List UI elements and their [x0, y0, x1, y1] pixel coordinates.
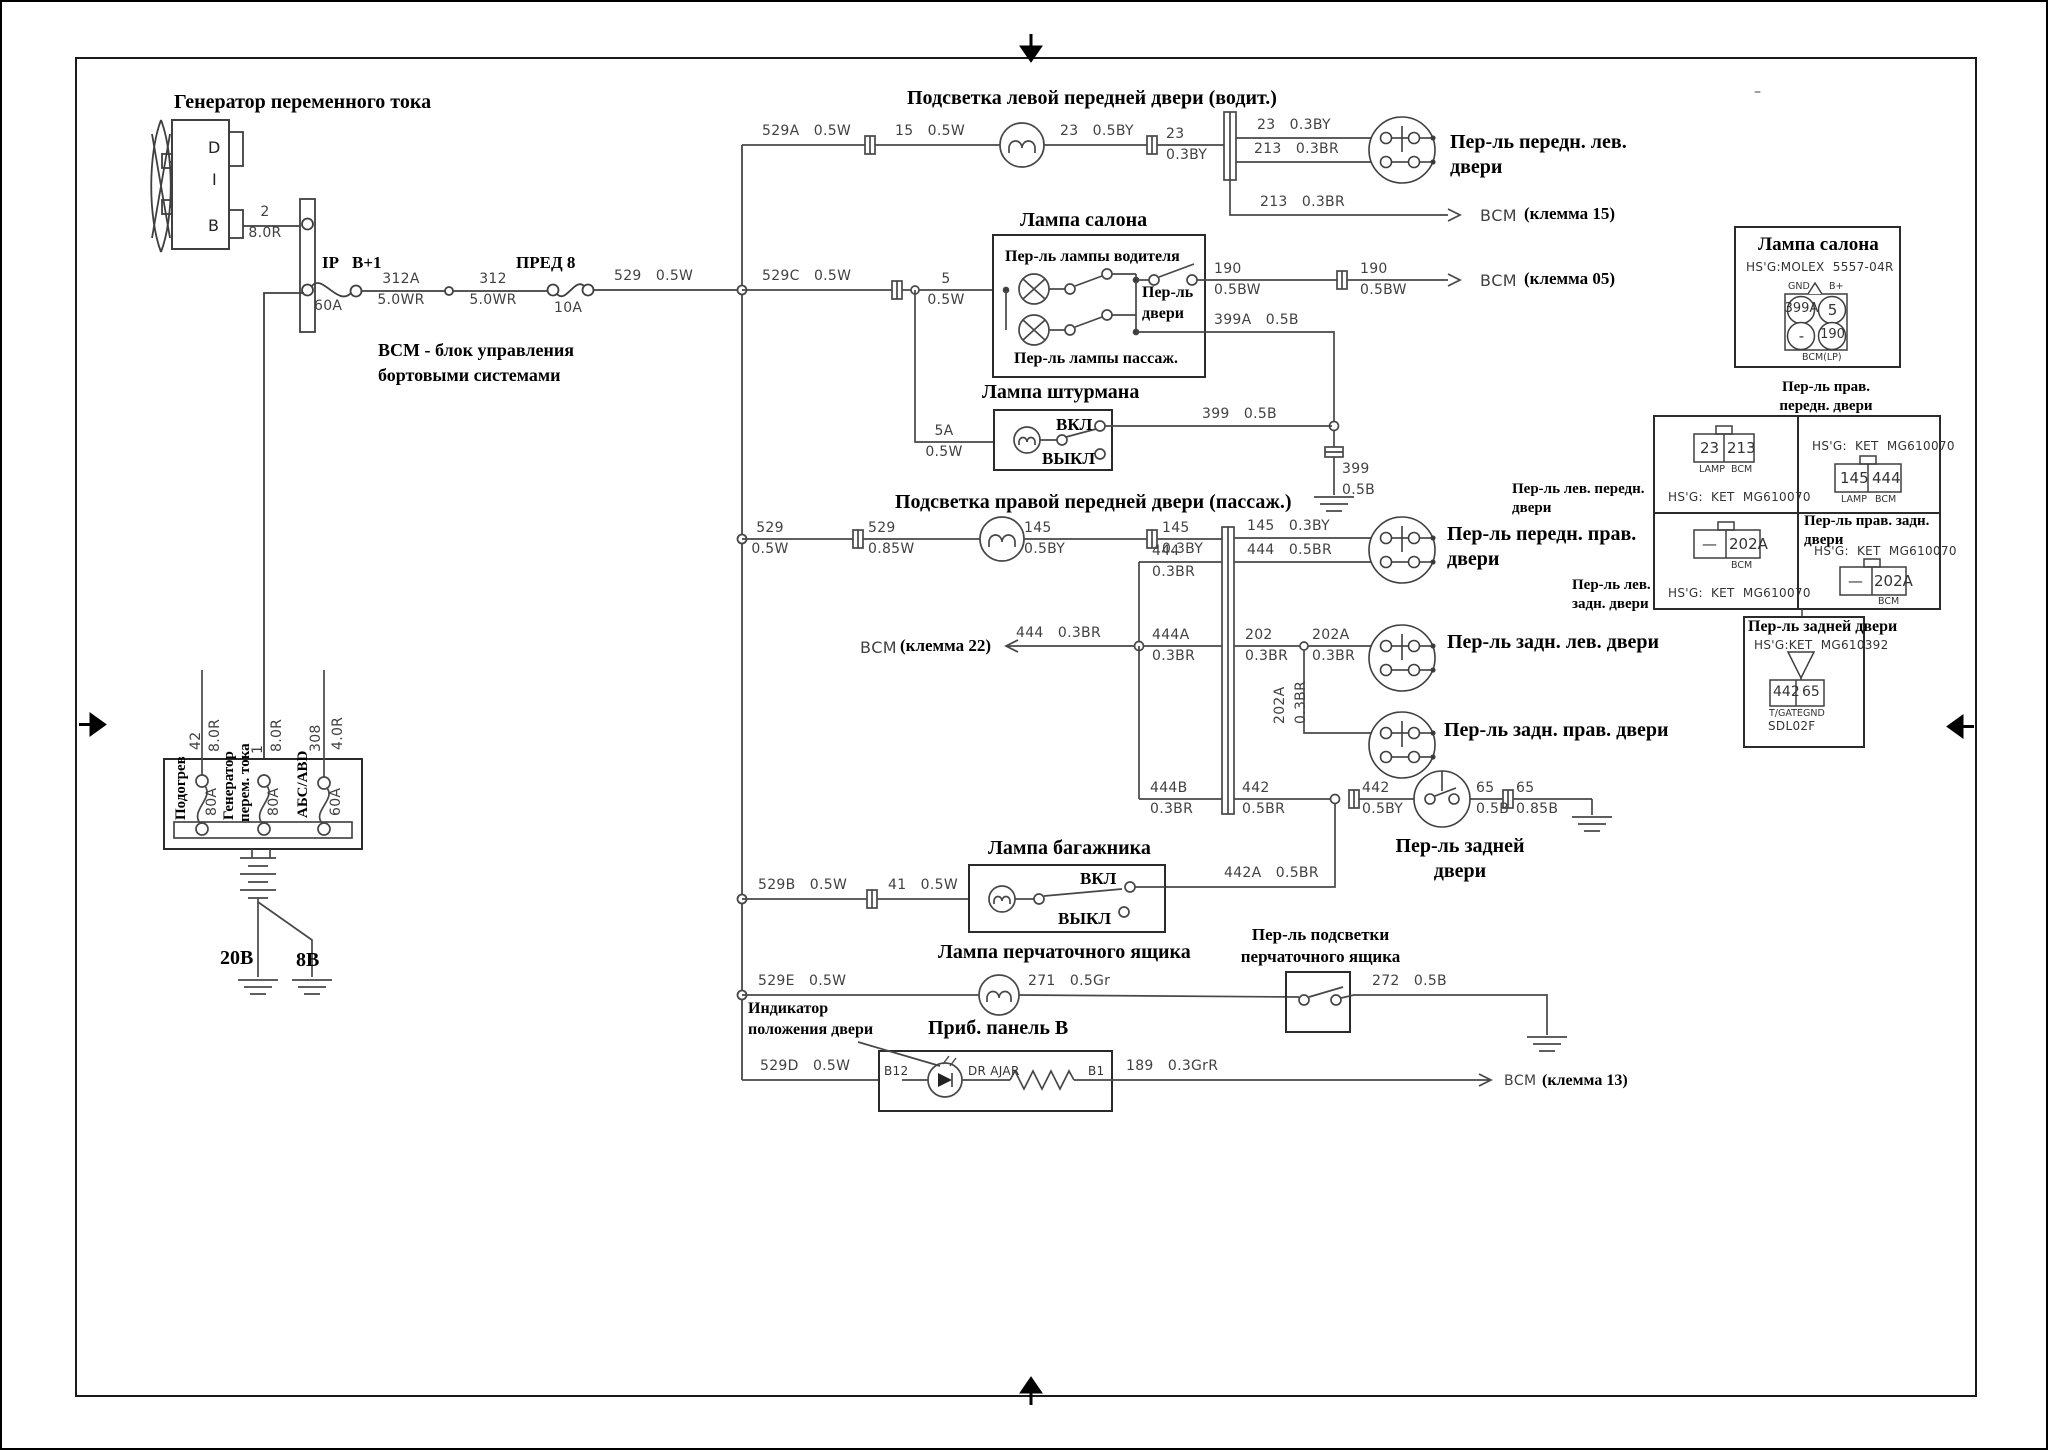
ip-label: IP [322, 252, 339, 274]
glovebox-switch-title: Пер-ль подсветки перчаточного ящика [1228, 924, 1413, 968]
grid-tl-bcm: BCM [1731, 464, 1752, 475]
wire-190b-label: 190 0.5BW [1360, 259, 1407, 301]
grid-bl-hsg: HS'G: KET MG610070 [1668, 586, 1811, 600]
wire-190a-label: 190 0.5BW [1214, 259, 1261, 301]
wire-442a-label: 442 0.5BR [1242, 778, 1285, 820]
wire-202a-vert-label: 202A 0.3BR [1270, 681, 1312, 724]
pin-5: 5 [1824, 301, 1841, 319]
dr-ajar-label: DR AJAR [968, 1064, 1020, 1078]
gen-pin-d: D [208, 138, 220, 157]
wire-213a-label: 213 0.3BR [1254, 139, 1339, 160]
tailgate-pin-442: 442 [1773, 684, 1800, 700]
wire-529-label: 529 0.5W [614, 266, 693, 287]
gen-pin-b: B [208, 216, 219, 235]
wire-272-label: 272 0.5B [1372, 971, 1447, 992]
bcm-15-label: ВСМ [1480, 205, 1517, 226]
pin-gnd-label: GND [1788, 281, 1810, 292]
grid-tr-lamp: LAMP [1841, 494, 1867, 505]
bcm-22-label: ВСМ [860, 637, 897, 658]
pin-399a: 399A [1783, 301, 1820, 316]
passenger-lamp-switch-label: Пер-ль лампы пассаж. [1014, 348, 1178, 369]
wire-529s-label: 529 0.5W [744, 518, 796, 560]
grid-tr-pin2: 444 [1872, 469, 1901, 487]
switch-front-right-label: Пер-ль передн. прав. двери [1447, 522, 1636, 572]
wire-529d-label: 529D 0.5W [760, 1056, 850, 1077]
grid-header-right-front: Пер-ль прав. передн. двери [1762, 378, 1890, 416]
wire-444b-label: 444 0.3BR [1016, 623, 1101, 644]
fuse-abs-amp: 60А [326, 788, 347, 816]
interior-lamp-title: Лампа салона [1020, 208, 1147, 233]
pin-b1-label: B1 [1088, 1064, 1104, 1078]
gen-pin-i: I [212, 170, 217, 189]
wire-5-label: 5 0.5W [920, 269, 972, 311]
wire-399-ground-label: 399 0.5B [1342, 459, 1375, 501]
wire-213b-label: 213 0.3BR [1260, 192, 1345, 213]
navigator-off-label: ВЫКЛ [1042, 448, 1095, 470]
wire-308-label: 308 [306, 724, 327, 752]
generator-title: Генератор переменного тока [174, 90, 431, 115]
wire-189-label: 189 0.3GrR [1126, 1056, 1218, 1077]
wire-23-label: 23 0.5BY [1060, 121, 1134, 142]
tailgate-box-title: Пер-ль задней двери [1748, 616, 1897, 637]
wire-1-gauge: 8.0R [267, 719, 288, 752]
wire-312-label: 312 5.0WR [462, 269, 524, 311]
fuse-abs-label: АБС/ABD [294, 751, 313, 818]
ground-20v-label: 20В [220, 946, 253, 971]
fuse-8-label: ПРЕД 8 [516, 252, 575, 274]
switch-tailgate-label: Пер-ль задней двери [1390, 834, 1530, 884]
wire-271-label: 271 0.5Gr [1028, 971, 1110, 992]
grid-br-bcm: BCM [1878, 596, 1899, 607]
bcm-terminal-05: (клемма 05) [1524, 268, 1615, 290]
grid-tl-hsg: HS'G: KET MG610070 [1668, 490, 1811, 504]
grid-tr-pin1: 145 [1840, 469, 1869, 487]
wire-529bb-label: 529B 0.5W [758, 875, 847, 896]
door-indicator-label: Индикатор положения двери [748, 998, 873, 1040]
wire-399a-label: 399A 0.5B [1214, 310, 1299, 331]
wire-23-stack-label: 23 0.3BY [1166, 124, 1207, 166]
switch-front-left-label: Пер-ль передн. лев. двери [1450, 130, 1627, 180]
trunk-off-label: ВЫКЛ [1058, 908, 1111, 930]
wire-529a-label: 529A 0.5W [762, 121, 851, 142]
bcm-terminal-13: (клемма 13) [1542, 1070, 1628, 1091]
wire-442b-label: 442 0.5BY [1362, 778, 1403, 820]
wire-145c-label: 145 0.3BY [1247, 516, 1330, 537]
bcm-05-label: ВСМ [1480, 270, 1517, 291]
fusible-60a-label: 60A [314, 296, 342, 317]
wiring-diagram-page: Генератор переменного тока D I B 2 8.0R … [0, 0, 2048, 1450]
bcm-note: ВСМ - блок управления бортовыми системам… [378, 338, 574, 388]
navigator-on-label: ВКЛ [1056, 414, 1092, 436]
wire-145a-label: 145 0.5BY [1024, 518, 1065, 560]
grid-tl-pin2: 213 [1727, 439, 1756, 457]
bcm-terminal-15: (клемма 15) [1524, 203, 1615, 225]
tailgate-pin-65: 65 [1802, 684, 1820, 700]
interior-lamp-hsg: HS'G:MOLEX 5557-04R [1746, 260, 1894, 274]
navigator-lamp-title: Лампа штурмана [982, 380, 1139, 405]
wire-42-label: 42 [186, 732, 207, 750]
wire-41-label: 41 0.5W [888, 875, 958, 896]
door-switch-label: Пер-ль двери [1142, 282, 1193, 324]
switch-rear-left-label: Пер-ль задн. лев. двери [1447, 630, 1659, 655]
wire-15-label: 15 0.5W [895, 121, 965, 142]
fuse-8-amp-label: 10A [554, 298, 582, 319]
grid-bl-pin2: 202A [1729, 535, 1768, 553]
grid-br-pin1: — [1848, 572, 1863, 590]
ground-8v-label: 8В [296, 948, 319, 973]
switch-rear-right-label: Пер-ль задн. прав. двери [1444, 718, 1669, 743]
pin-190: 190 [1817, 327, 1848, 342]
grid-br-pin2: 202A [1874, 572, 1913, 590]
wire-529e-label: 529E 0.5W [758, 971, 846, 992]
wire-529-085-label: 529 0.85W [868, 518, 915, 560]
wire-312a-label: 312A 5.0WR [370, 269, 432, 311]
left-front-door-title: Подсветка левой передней двери (водит.) [907, 86, 1277, 111]
page-dash-mark: – [1754, 82, 1761, 103]
pin-dash: - [1793, 327, 1810, 345]
wire-444bb-label: 444B 0.3BR [1150, 778, 1193, 820]
tailgate-switch-circuit [1139, 646, 1612, 887]
interior-lamp-box-title: Лампа салона [1758, 232, 1879, 257]
bcm-lp-label: BCM(LP) [1802, 352, 1842, 363]
trunk-lamp-title: Лампа багажника [988, 836, 1151, 861]
wire-308-gauge: 4.0R [328, 717, 349, 750]
fuse-gen-amp: 80А [264, 788, 285, 816]
tailgate-tgate-label: T/GATE [1769, 708, 1803, 719]
pin-b12-label: B12 [884, 1064, 908, 1078]
edge-arrow-icons [79, 34, 1974, 1405]
grid-bl-bcm: BCM [1731, 560, 1752, 571]
wire-202-label: 202 0.3BR [1245, 625, 1288, 667]
tailgate-sdl-label: SDL02F [1768, 719, 1816, 733]
wire-65a-label: 65 0.5B [1476, 778, 1509, 820]
glovebox-lamp-title: Лампа перчаточного ящика [938, 940, 1191, 965]
pin-bplus-label: B+ [1829, 281, 1843, 292]
wire-202a-label: 202A 0.3BR [1312, 625, 1355, 667]
grid-bl-pin1: — [1702, 535, 1717, 553]
door-ajar-indicator-circuit [742, 1042, 1491, 1111]
label-left-front-conn: Пер-ль лев. передн. двери [1512, 480, 1645, 518]
wire-2-label: 2 8.0R [237, 202, 293, 244]
bcm-13-label: ВСМ [1504, 1071, 1536, 1092]
grid-tl-lamp: LAMP [1699, 464, 1725, 475]
tailgate-hsg: HS'G:KET MG610392 [1754, 638, 1889, 652]
wire-23b-label: 23 0.3BY [1257, 115, 1331, 136]
grid-br-hsg: HS'G: KET MG610070 [1814, 544, 1957, 558]
grid-tr-hsg: HS'G: KET MG610070 [1812, 439, 1955, 453]
tailgate-gnd-label: GND [1803, 708, 1825, 719]
right-front-door-title: Подсветка правой передней двери (пассаж.… [895, 490, 1292, 515]
wire-42-gauge: 8.0R [205, 719, 226, 752]
wire-444-stack-label: 444 0.3BR [1152, 541, 1195, 583]
grid-tr-bcm: BCM [1875, 494, 1896, 505]
wire-5a-label: 5A 0.5W [918, 421, 970, 463]
label-left-rear-conn: Пер-ль лев. задн. двери [1572, 576, 1651, 614]
wire-65b-label: 65 0.85B [1516, 778, 1558, 820]
driver-lamp-switch-label: Пер-ль лампы водителя [1005, 246, 1180, 267]
wire-444a-label: 444A 0.3BR [1152, 625, 1195, 667]
wire-444-label: 444 0.5BR [1247, 540, 1332, 561]
instrument-panel-title: Приб. панель B [928, 1016, 1068, 1041]
bcm-terminal-22: (клемма 22) [900, 635, 991, 657]
wire-442c-label: 442A 0.5BR [1224, 863, 1319, 884]
fuse-gen-label-2: перем. тока [236, 743, 255, 822]
wire-529c-label: 529C 0.5W [762, 266, 851, 287]
trunk-on-label: ВКЛ [1080, 868, 1116, 890]
fuse-heater-label: Подогрев [172, 756, 191, 820]
wire-399b-label: 399 0.5B [1202, 404, 1277, 425]
feed-bus [738, 145, 747, 1080]
grid-tl-pin1: 23 [1700, 439, 1719, 457]
